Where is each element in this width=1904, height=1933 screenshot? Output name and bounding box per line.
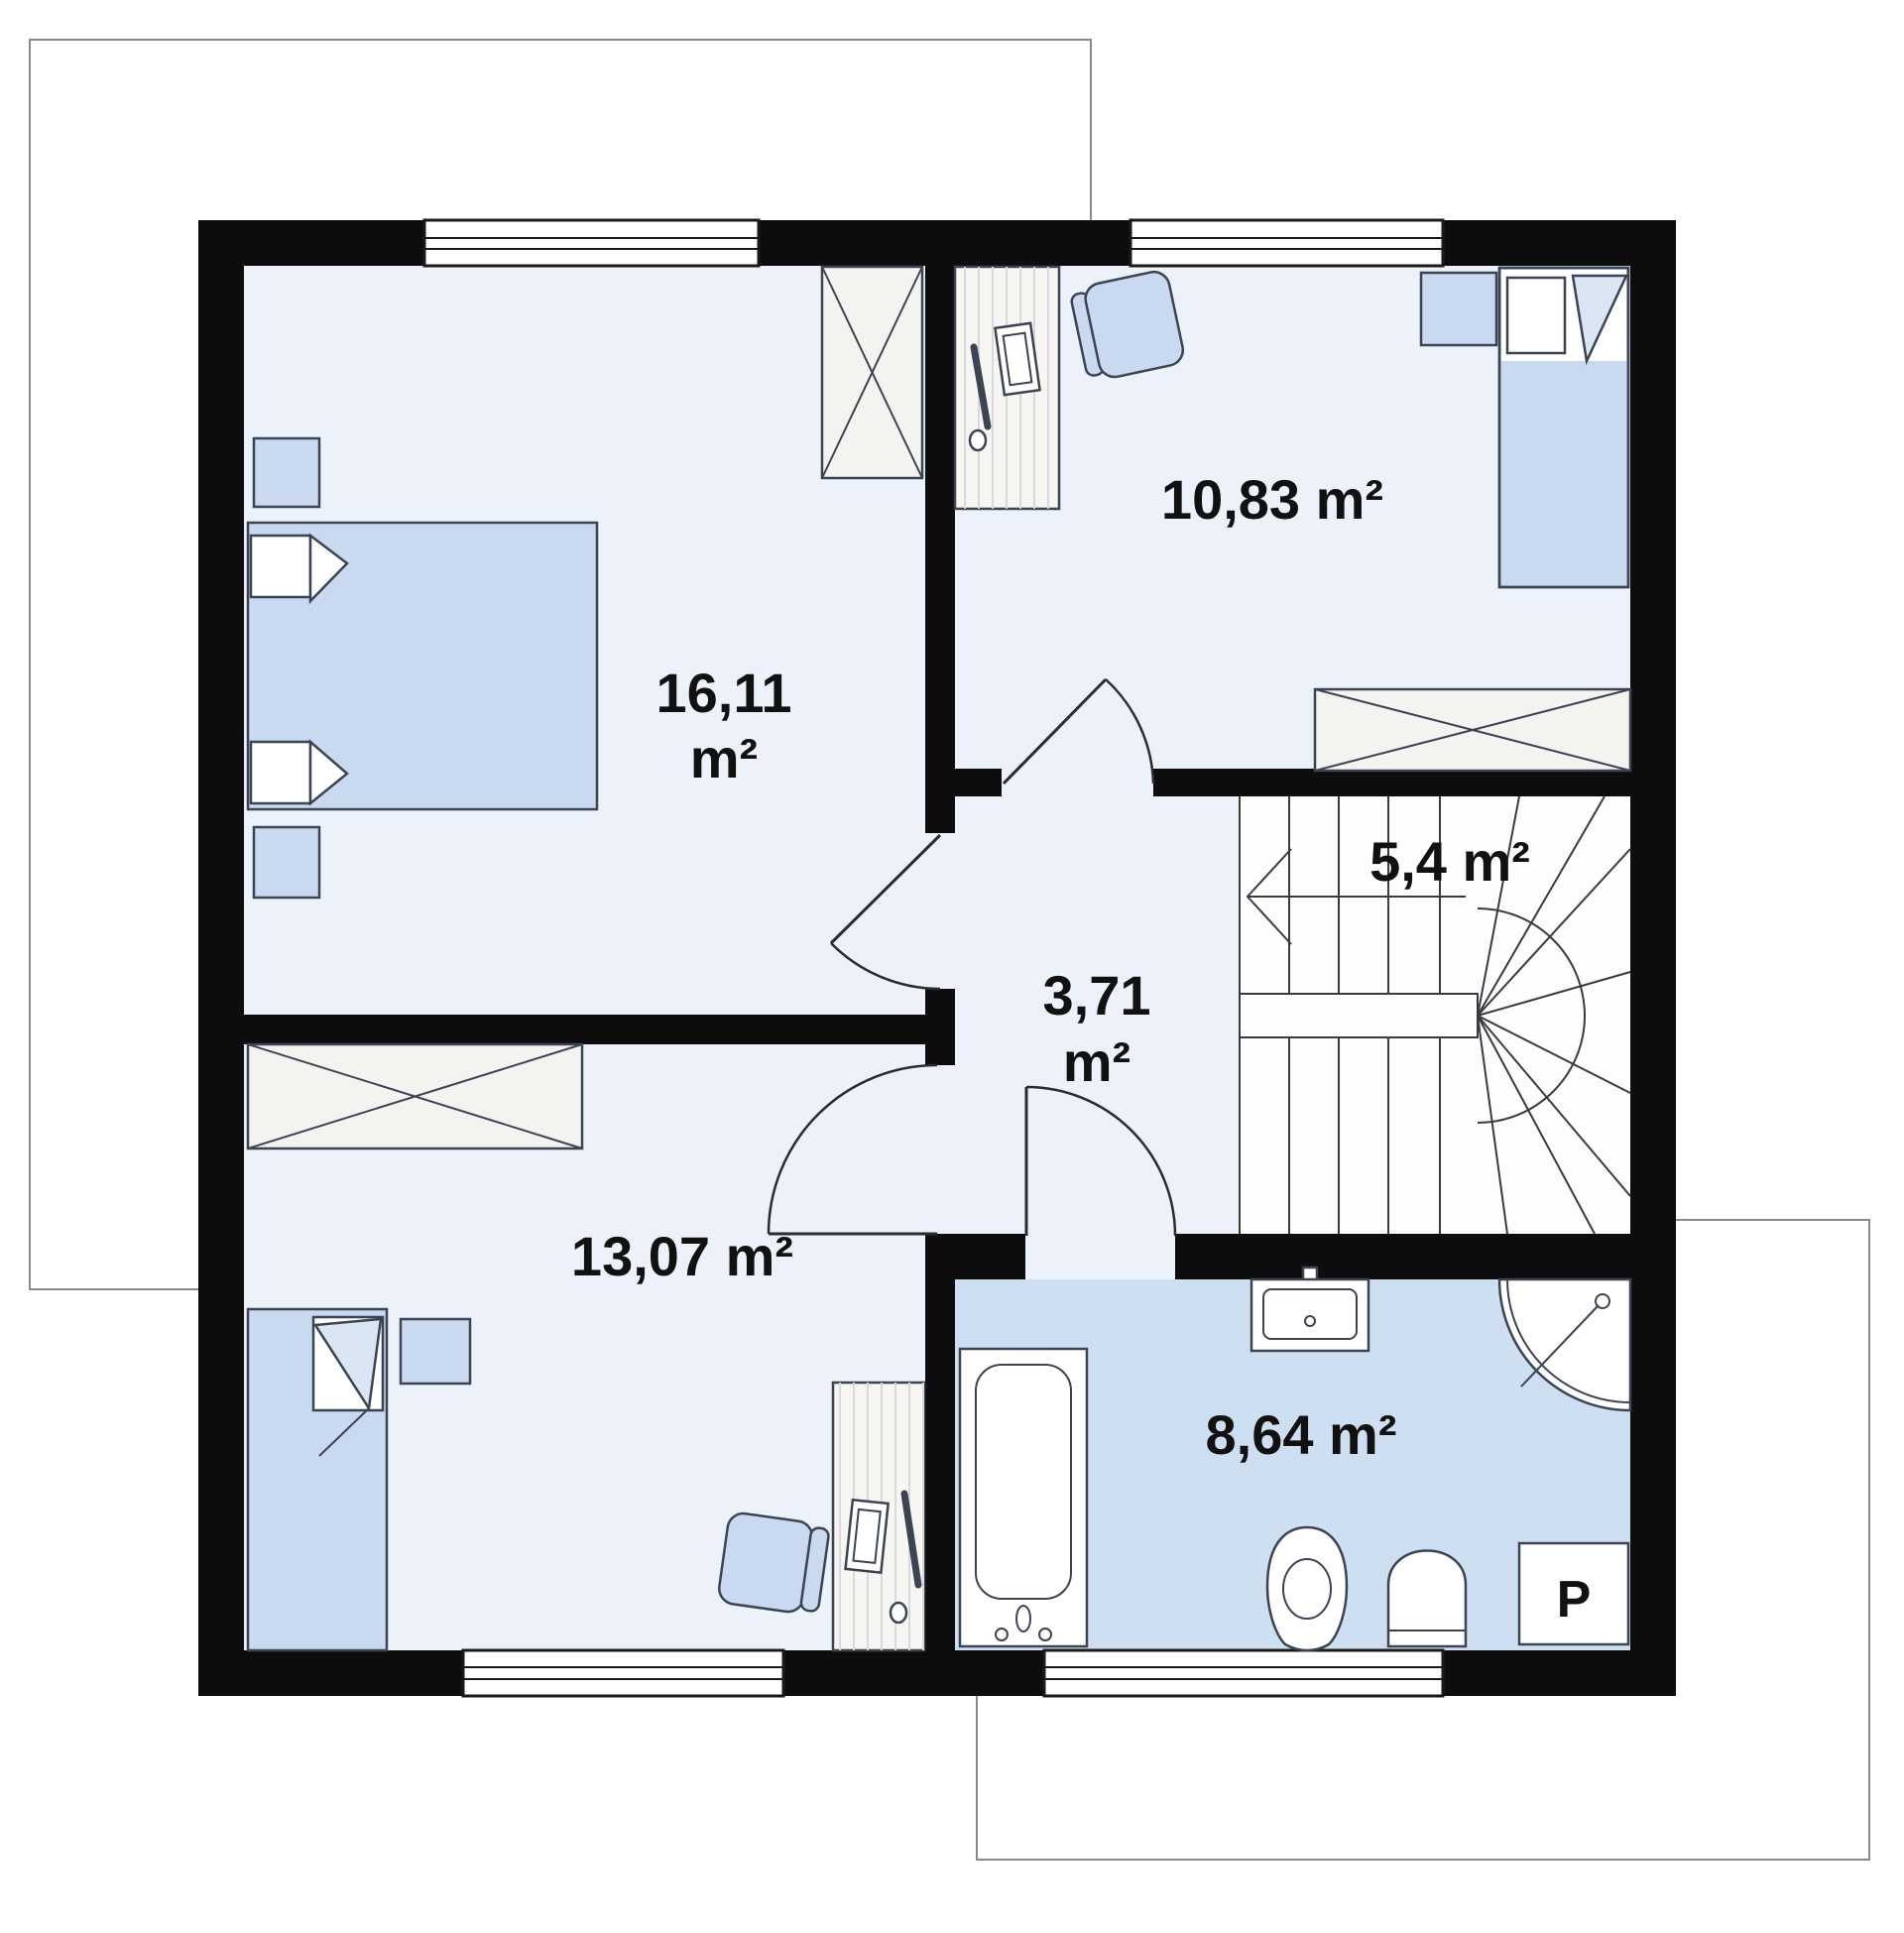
desk — [833, 1383, 924, 1650]
nightstand — [401, 1319, 470, 1384]
keyboard — [995, 323, 1039, 395]
window-top-right — [1130, 220, 1443, 266]
floor-plan: P 16,11 m² 10,83 m² 5,4 m² 3,71 m² 13,07… — [0, 0, 1904, 1933]
label-hallway-unit: m² — [1063, 1030, 1130, 1093]
washing-machine: P — [1519, 1543, 1628, 1644]
toilet — [1267, 1527, 1347, 1650]
pillow — [251, 536, 310, 597]
door-opening-bedroom-main — [925, 833, 955, 989]
label-bedroom-right: 10,83 m² — [1161, 468, 1383, 531]
door-opening-bedroom-right — [1002, 769, 1153, 796]
mouse — [891, 1603, 906, 1623]
window-bottom-right — [1044, 1650, 1443, 1696]
mouse — [970, 430, 986, 450]
door-opening-bedroom-lower — [925, 1065, 955, 1234]
wardrobe — [248, 1044, 582, 1148]
single-bed — [1499, 268, 1628, 587]
bathtub — [960, 1349, 1087, 1646]
window-top-left — [424, 220, 759, 266]
desk — [955, 267, 1059, 509]
bidet — [1388, 1551, 1466, 1647]
label-hallway-value: 3,71 — [1043, 964, 1151, 1027]
sink — [1251, 1268, 1368, 1351]
nightstand — [254, 827, 319, 898]
keyboard — [846, 1500, 889, 1572]
washing-machine-label: P — [1557, 1571, 1592, 1629]
pillow — [251, 742, 310, 803]
label-bedroom-main-value: 16,11 — [655, 662, 791, 724]
nightstand — [1421, 273, 1496, 345]
wardrobe — [822, 267, 922, 478]
label-bedroom-main-unit: m² — [690, 727, 758, 789]
label-bedroom-lower: 13,07 m² — [571, 1225, 793, 1287]
label-bathroom: 8,64 m² — [1206, 1403, 1397, 1466]
label-staircase: 5,4 m² — [1369, 830, 1530, 893]
window-bottom-left — [463, 1650, 783, 1696]
wardrobe — [1315, 689, 1630, 771]
double-bed — [248, 523, 597, 809]
pillow — [1507, 278, 1565, 353]
nightstand — [254, 438, 319, 507]
single-bed — [248, 1309, 387, 1650]
door-opening-bathroom — [1025, 1234, 1175, 1279]
